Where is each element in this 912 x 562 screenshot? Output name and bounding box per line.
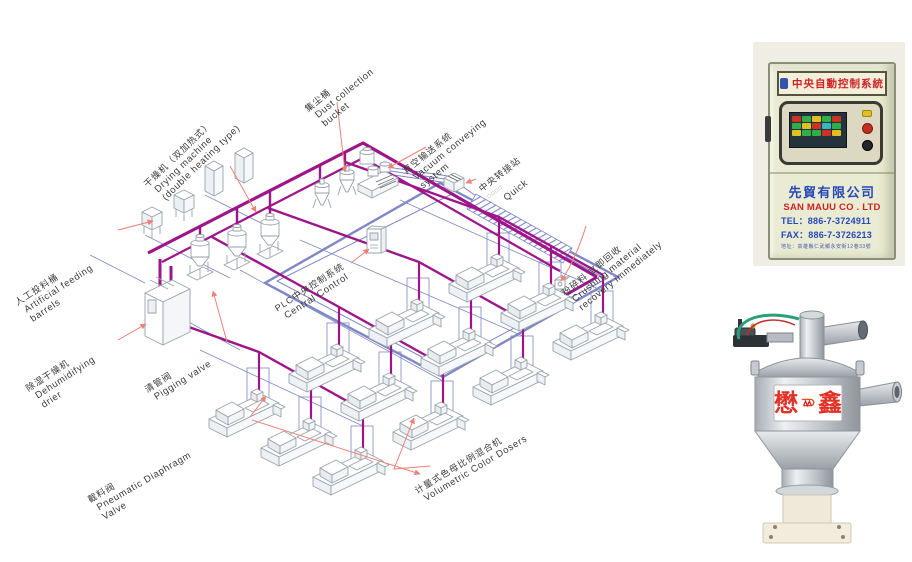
cabinet-seam [770,172,894,174]
page: 干燥机（双加热式） Drying machine (double heating… [0,0,912,562]
indicator-light-red [862,123,873,134]
cabinet-handle [765,116,771,142]
pedestal-base [763,495,851,543]
cabinet-emblem-icon [780,78,788,89]
control-cabinet-photo: 中央自動控制系統 先貿有限公司 SAN MAUU CO . LTD [753,42,905,266]
cabinet-body: 中央自動控制系統 先貿有限公司 SAN MAUU CO . LTD [768,62,896,260]
dehumidifier-unit [145,277,190,345]
cabinet-text-block: 先貿有限公司 SAN MAUU CO . LTD TEL：886-7-37249… [774,182,890,250]
pneumatic-assembly [733,315,799,347]
company-name-en: SAN MAUU CO . LTD [774,202,890,213]
company-address: 地址：高雄縣仁武鄉永安街12巷33號 [774,243,890,250]
inlet-pipe-top [800,311,868,359]
indicator-light-yellow [862,110,872,117]
hopper-loader-drawing [705,293,910,555]
company-name-zh: 先貿有限公司 [774,182,890,201]
company-fax: FAX：886-7-3726213 [774,228,890,241]
touch-panel-bezel [779,101,883,165]
power-button [862,140,873,151]
touch-screen [789,112,847,148]
hopper-cone [755,431,860,469]
indicator-lights [859,110,875,151]
hopper-loader-photo: 懋 鑫 [705,293,910,555]
dust-barrel [360,148,374,165]
cabinet-header-text: 中央自動控制系統 [792,76,884,91]
brand-label: 懋 鑫 [774,385,842,421]
hopper-lid [751,358,864,377]
brand-char-left: 懋 [774,391,798,415]
cabinet-header-plaque: 中央自動控制系統 [777,71,887,96]
inlet-pipe-side [860,382,902,406]
brand-char-right: 鑫 [818,391,842,415]
plc-control-box [367,226,386,253]
brand-logo-icon [800,395,816,411]
company-tel: TEL：886-7-3724911 [774,214,890,227]
